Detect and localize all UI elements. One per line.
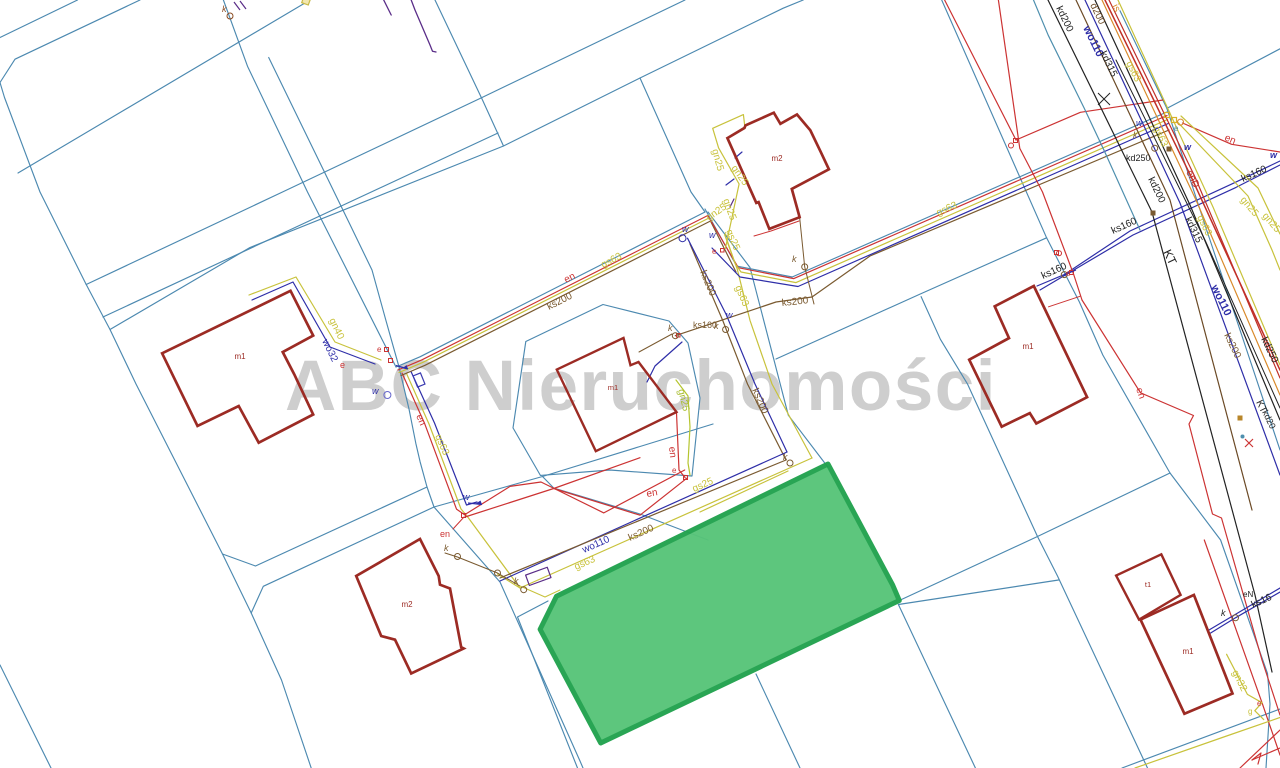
svg-text:k: k bbox=[514, 576, 519, 586]
svg-text:w: w bbox=[709, 230, 716, 240]
svg-text:k: k bbox=[1221, 608, 1226, 618]
svg-text:w: w bbox=[1136, 118, 1143, 128]
svg-text:k: k bbox=[222, 4, 227, 14]
svg-text:m2: m2 bbox=[401, 600, 413, 609]
svg-text:e: e bbox=[340, 360, 345, 370]
svg-text:k: k bbox=[792, 254, 797, 264]
svg-text:m1: m1 bbox=[1182, 647, 1194, 656]
svg-text:en: en bbox=[646, 487, 659, 500]
svg-text:k: k bbox=[783, 452, 788, 462]
svg-text:w: w bbox=[372, 386, 379, 396]
svg-text:e: e bbox=[712, 247, 717, 256]
svg-text:m2: m2 bbox=[771, 154, 783, 163]
svg-text:e: e bbox=[672, 466, 677, 475]
svg-text:w: w bbox=[463, 492, 470, 502]
svg-text:e: e bbox=[1257, 699, 1262, 708]
svg-text:eN: eN bbox=[1243, 590, 1253, 599]
svg-text:e: e bbox=[1066, 269, 1071, 278]
svg-text:k: k bbox=[668, 323, 673, 333]
svg-text:k: k bbox=[1133, 130, 1138, 140]
svg-text:en: en bbox=[440, 529, 450, 539]
svg-text:m1: m1 bbox=[608, 383, 618, 392]
svg-text:w: w bbox=[1270, 150, 1278, 160]
svg-text:w: w bbox=[726, 310, 733, 320]
svg-text:m1: m1 bbox=[234, 352, 246, 361]
svg-text:g: g bbox=[1248, 707, 1252, 716]
svg-text:kd250: kd250 bbox=[1126, 153, 1151, 163]
svg-text:e: e bbox=[377, 345, 382, 354]
svg-text:w: w bbox=[682, 224, 689, 234]
svg-text:k: k bbox=[444, 543, 449, 553]
svg-text:t1: t1 bbox=[1145, 580, 1151, 589]
svg-text:en: en bbox=[666, 446, 678, 458]
svg-text:e: e bbox=[1174, 124, 1179, 133]
svg-text:m1: m1 bbox=[1022, 342, 1034, 351]
svg-text:w: w bbox=[1184, 142, 1192, 152]
svg-text:k: k bbox=[714, 321, 719, 331]
